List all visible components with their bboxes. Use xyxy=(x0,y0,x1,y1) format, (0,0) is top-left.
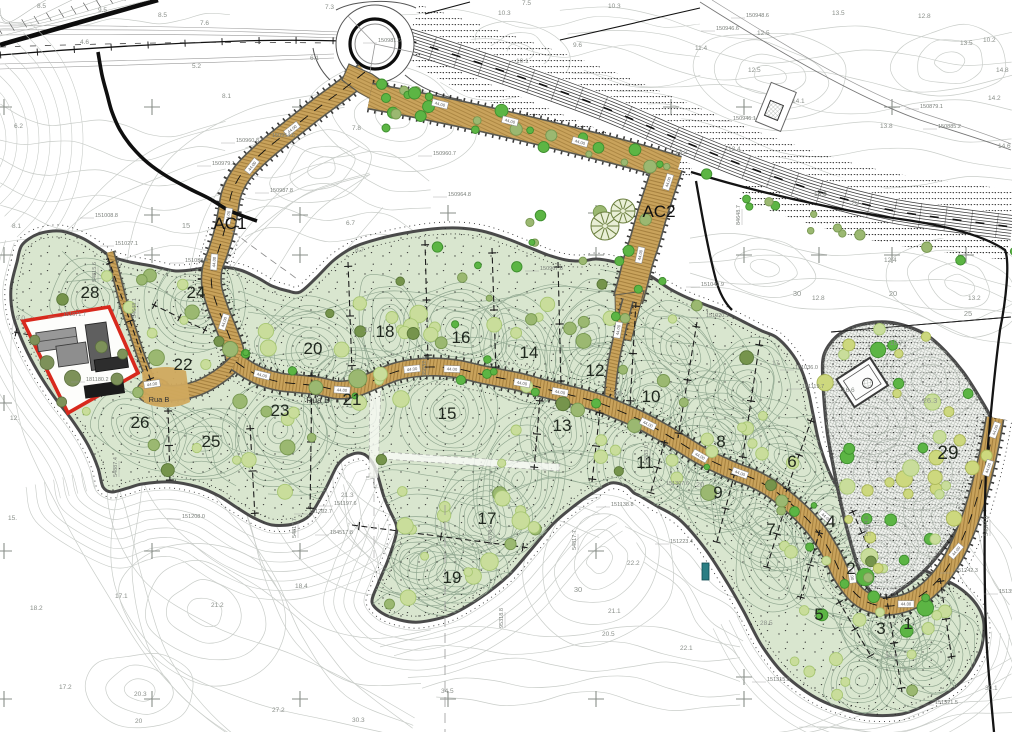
svg-text:13.2: 13.2 xyxy=(675,149,688,156)
svg-text:54817.7: 54817.7 xyxy=(572,530,578,550)
svg-text:151020.1: 151020.1 xyxy=(706,313,729,319)
svg-text:150964.8: 150964.8 xyxy=(448,192,471,198)
svg-text:16.7: 16.7 xyxy=(890,340,903,347)
svg-text:151049.9: 151049.9 xyxy=(701,282,724,288)
svg-text:AC2: AC2 xyxy=(642,202,675,221)
svg-text:151027.1: 151027.1 xyxy=(115,241,138,247)
svg-text:20: 20 xyxy=(851,198,859,207)
svg-text:22: 22 xyxy=(174,355,193,374)
svg-text:26.3: 26.3 xyxy=(923,396,938,405)
svg-text:151357.1: 151357.1 xyxy=(999,589,1012,595)
svg-text:20: 20 xyxy=(696,480,704,489)
svg-text:19: 19 xyxy=(443,568,462,587)
svg-text:25: 25 xyxy=(202,432,221,451)
svg-text:150946.1: 150946.1 xyxy=(733,116,756,122)
svg-text:30: 30 xyxy=(574,585,582,594)
svg-text:26: 26 xyxy=(131,413,150,432)
svg-text:4.6: 4.6 xyxy=(80,39,89,46)
svg-text:18: 18 xyxy=(376,322,395,341)
svg-text:151119.7: 151119.7 xyxy=(802,384,824,390)
svg-text:35632.8: 35632.8 xyxy=(422,356,428,376)
svg-text:9.0: 9.0 xyxy=(16,315,25,322)
svg-text:23: 23 xyxy=(271,401,290,420)
svg-text:9: 9 xyxy=(713,483,722,502)
svg-text:151321.5: 151321.5 xyxy=(935,700,958,706)
svg-text:84648.7: 84648.7 xyxy=(736,205,742,225)
svg-text:44.00: 44.00 xyxy=(447,366,458,371)
svg-text:21.2: 21.2 xyxy=(211,602,224,609)
svg-text:15: 15 xyxy=(438,404,457,423)
svg-text:150885.2: 150885.2 xyxy=(938,124,961,130)
svg-text:8.7: 8.7 xyxy=(355,247,364,254)
svg-text:14.1: 14.1 xyxy=(792,98,805,105)
svg-text:7.5: 7.5 xyxy=(522,0,531,7)
svg-text:27.2: 27.2 xyxy=(272,707,285,714)
svg-text:151202.7: 151202.7 xyxy=(309,509,332,515)
svg-text:44.00: 44.00 xyxy=(211,256,217,267)
svg-text:150879.1: 150879.1 xyxy=(920,104,943,110)
svg-text:151138.8: 151138.8 xyxy=(611,502,634,508)
svg-text:14: 14 xyxy=(520,343,539,362)
svg-text:181180.2: 181180.2 xyxy=(86,377,109,383)
svg-text:18.2: 18.2 xyxy=(30,605,43,612)
svg-text:150987.8: 150987.8 xyxy=(270,188,293,194)
svg-text:14.2: 14.2 xyxy=(988,95,1001,102)
svg-text:150946.6: 150946.6 xyxy=(716,26,739,32)
svg-text:29: 29 xyxy=(937,443,958,464)
svg-text:28: 28 xyxy=(81,283,100,302)
svg-text:12: 12 xyxy=(586,361,605,380)
svg-text:54833.0: 54833.0 xyxy=(644,445,650,465)
svg-text:7.6: 7.6 xyxy=(200,20,209,27)
svg-text:1: 1 xyxy=(903,614,912,633)
svg-text:8.1: 8.1 xyxy=(12,223,21,230)
svg-text:30: 30 xyxy=(793,289,801,298)
svg-text:13.5: 13.5 xyxy=(960,40,973,47)
svg-text:17.2: 17.2 xyxy=(59,684,72,691)
svg-text:10.3: 10.3 xyxy=(608,3,621,10)
svg-text:151036.0: 151036.0 xyxy=(795,365,818,371)
svg-text:16.6: 16.6 xyxy=(814,191,827,198)
svg-text:18.4: 18.4 xyxy=(295,583,308,590)
svg-text:6.7: 6.7 xyxy=(346,220,355,227)
svg-text:20: 20 xyxy=(889,289,897,298)
svg-text:16.6: 16.6 xyxy=(842,387,855,394)
svg-text:7: 7 xyxy=(766,520,775,539)
svg-text:8.5: 8.5 xyxy=(37,3,46,10)
svg-text:2: 2 xyxy=(846,559,855,578)
svg-text:151223.4: 151223.4 xyxy=(670,539,693,545)
svg-text:151315.8: 151315.8 xyxy=(767,677,790,683)
svg-text:6.1: 6.1 xyxy=(310,55,319,62)
svg-text:30.3: 30.3 xyxy=(352,717,365,724)
svg-text:14.8: 14.8 xyxy=(996,67,1009,74)
svg-text:10: 10 xyxy=(364,325,372,334)
svg-text:5.2: 5.2 xyxy=(192,63,201,70)
svg-text:10: 10 xyxy=(642,387,661,406)
svg-text:54815.6: 54815.6 xyxy=(92,262,98,282)
svg-text:Rua B: Rua B xyxy=(149,395,170,404)
svg-text:17: 17 xyxy=(772,360,780,367)
svg-text:150979.1: 150979.1 xyxy=(212,161,235,167)
svg-text:21.1: 21.1 xyxy=(608,608,621,615)
svg-text:20: 20 xyxy=(614,389,622,398)
svg-text:22.2: 22.2 xyxy=(627,560,640,567)
svg-text:34.9: 34.9 xyxy=(885,653,898,660)
svg-text:13.8: 13.8 xyxy=(880,123,893,130)
svg-text:54674.0: 54674.0 xyxy=(984,516,990,536)
svg-text:150967.8: 150967.8 xyxy=(540,266,563,272)
svg-text:15.: 15. xyxy=(8,515,17,522)
svg-text:151197.6: 151197.6 xyxy=(334,501,357,507)
svg-text:8.5: 8.5 xyxy=(158,12,167,19)
svg-text:16: 16 xyxy=(452,328,471,347)
svg-text:12.5: 12.5 xyxy=(748,67,761,74)
svg-text:184517.8: 184517.8 xyxy=(330,530,353,536)
svg-text:7.3: 7.3 xyxy=(325,4,334,11)
svg-text:54648.1: 54648.1 xyxy=(132,298,138,318)
svg-text:10.3: 10.3 xyxy=(498,10,511,17)
svg-text:3: 3 xyxy=(876,619,885,638)
svg-text:34.5: 34.5 xyxy=(441,688,454,695)
svg-text:54878.9: 54878.9 xyxy=(488,525,494,545)
svg-text:22.1: 22.1 xyxy=(680,645,693,652)
svg-text:13.5: 13.5 xyxy=(832,10,845,17)
svg-text:151242.3: 151242.3 xyxy=(955,568,978,574)
svg-text:4: 4 xyxy=(826,512,835,531)
svg-text:151071.7: 151071.7 xyxy=(63,312,86,318)
svg-text:20: 20 xyxy=(304,339,323,358)
svg-text:95318.8: 95318.8 xyxy=(499,608,505,628)
svg-text:54887.4: 54887.4 xyxy=(113,457,119,477)
svg-text:151008.8: 151008.8 xyxy=(95,213,118,219)
svg-text:151208.0: 151208.0 xyxy=(182,514,205,520)
svg-text:12.8: 12.8 xyxy=(918,13,931,20)
svg-text:24: 24 xyxy=(187,283,206,302)
svg-text:15: 15 xyxy=(182,221,190,230)
svg-text:17.1: 17.1 xyxy=(115,593,128,600)
svg-text:54817.7: 54817.7 xyxy=(292,518,298,538)
svg-text:8.1: 8.1 xyxy=(222,93,231,100)
svg-text:9.6: 9.6 xyxy=(573,42,582,49)
svg-text:150981.6: 150981.6 xyxy=(378,38,401,44)
svg-text:30.1: 30.1 xyxy=(985,685,998,692)
svg-text:12.5: 12.5 xyxy=(757,30,770,37)
svg-text:13.4: 13.4 xyxy=(728,146,741,153)
svg-text:6.2: 6.2 xyxy=(14,123,23,130)
svg-text:12.: 12. xyxy=(10,415,19,422)
svg-text:6: 6 xyxy=(787,452,796,471)
svg-text:151307.6: 151307.6 xyxy=(666,481,689,487)
svg-text:14.6: 14.6 xyxy=(998,143,1011,150)
svg-text:9.5: 9.5 xyxy=(98,7,107,14)
svg-text:12.8: 12.8 xyxy=(812,295,825,302)
svg-text:13.2: 13.2 xyxy=(968,295,981,302)
svg-text:150954.6: 150954.6 xyxy=(272,133,295,139)
svg-text:150960.8: 150960.8 xyxy=(236,138,259,144)
svg-text:5: 5 xyxy=(814,605,823,624)
svg-text:11.4: 11.4 xyxy=(695,45,708,52)
svg-text:10.1: 10.1 xyxy=(516,58,529,65)
svg-text:21: 21 xyxy=(343,390,362,409)
svg-text:13: 13 xyxy=(553,416,572,435)
svg-text:25: 25 xyxy=(964,309,972,318)
svg-text:150960.7: 150960.7 xyxy=(433,151,456,157)
svg-text:54674.6: 54674.6 xyxy=(864,516,870,536)
svg-text:Rua B: Rua B xyxy=(306,395,330,405)
svg-text:8: 8 xyxy=(716,432,725,451)
svg-text:20.3: 20.3 xyxy=(134,691,147,698)
svg-text:44.00: 44.00 xyxy=(901,602,912,607)
svg-text:20.5: 20.5 xyxy=(602,631,615,638)
svg-text:28.5: 28.5 xyxy=(760,620,773,627)
svg-text:21.3: 21.3 xyxy=(341,492,354,499)
svg-text:12.4: 12.4 xyxy=(884,257,897,264)
svg-text:20: 20 xyxy=(135,718,143,725)
svg-text:150948.6: 150948.6 xyxy=(746,13,769,19)
svg-text:7.8: 7.8 xyxy=(352,125,361,132)
svg-text:AC1: AC1 xyxy=(213,214,246,233)
svg-text:10.2: 10.2 xyxy=(983,37,996,44)
svg-text:151038.4: 151038.4 xyxy=(185,258,208,264)
